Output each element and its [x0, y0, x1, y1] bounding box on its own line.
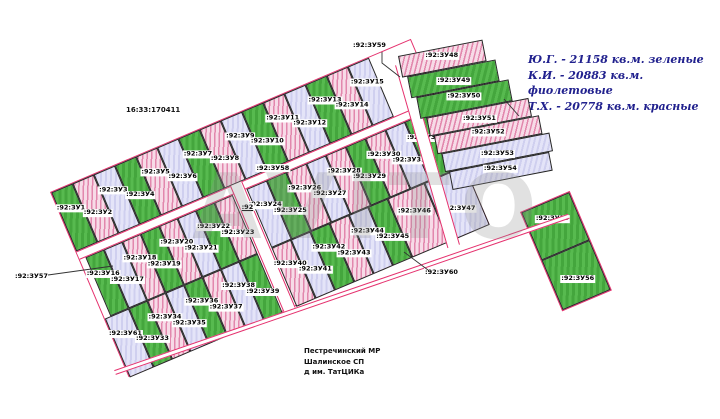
parcel-label-4: :92:ЗУ4: [125, 191, 155, 199]
road-57-label: :92:ЗУ57: [14, 272, 49, 280]
parcel-label-53: :92:ЗУ53: [480, 150, 515, 158]
parcel-label-8: :92:ЗУ8: [209, 155, 239, 163]
parcel-label-56: :92:ЗУ56: [560, 275, 595, 283]
parcel-label-25: :92:ЗУ25: [273, 207, 308, 215]
parcel-label-49: :92:ЗУ49: [436, 77, 471, 85]
location-line-1: Пестречинский МР: [304, 346, 380, 357]
parcel-label-23: :92:ЗУ23: [220, 229, 255, 237]
parcel-label-5: :92:ЗУ5: [140, 169, 170, 177]
location-text: Пестречинский МР Шалинское СП д им. ТатЦ…: [304, 346, 380, 378]
parcel-label-19: :92:ЗУ19: [147, 260, 182, 268]
parcel-label-50: :92:ЗУ50: [446, 92, 481, 100]
right-block: :92:ЗУ48:92:ЗУ49:92:ЗУ50:92:ЗУ51:92:ЗУ52…: [398, 30, 557, 195]
parcel-label-45: :92:ЗУ45: [375, 233, 410, 241]
parcel-label-54: :92:ЗУ54: [483, 165, 518, 173]
parcel-label-27: :92:ЗУ27: [313, 190, 348, 198]
se-block: :92:ЗУ55:92:ЗУ56: [520, 191, 612, 312]
parcel-label-35: :92:ЗУ35: [172, 319, 207, 327]
parcel-block-48-54: :92:ЗУ48:92:ЗУ49:92:ЗУ50:92:ЗУ51:92:ЗУ52…: [398, 30, 557, 195]
parcel-label-37: :92:ЗУ37: [209, 304, 244, 312]
parcel-label-41: :92:ЗУ41: [297, 266, 332, 274]
location-line-3: д им. ТатЦИКа: [304, 367, 380, 378]
parcel-label-33: :92:ЗУ33: [135, 335, 170, 343]
parcel-block-55-56: :92:ЗУ55:92:ЗУ56: [521, 192, 610, 310]
parcel-label-3: :92:ЗУ3: [98, 187, 128, 195]
road-59-label: :92:ЗУ59: [352, 41, 387, 49]
parcel-label-43: :92:ЗУ43: [336, 249, 371, 257]
legend-entry-violet: К.И. - 20883 кв.м. фиолетовые: [528, 68, 720, 99]
parcel-label-14: :92:ЗУ14: [334, 101, 369, 109]
legend-entry-green: Ю.Г. - 21158 кв.м. зеленые: [528, 52, 720, 68]
parcel-label-15: :92:ЗУ15: [349, 79, 384, 87]
cadastral-map: 16:33:170411 Ю.Г. - 21158 кв.м. зеленые …: [0, 0, 720, 419]
parcel-label-48: :92:ЗУ48: [424, 52, 459, 60]
parcel-label-46: :92:ЗУ46: [397, 207, 432, 215]
legend: Ю.Г. - 21158 кв.м. зеленые К.И. - 20883 …: [528, 52, 720, 114]
legend-entry-red: Т.Х. - 20778 кв.м. красные: [528, 99, 720, 115]
parcel-label-2: :92:ЗУ2: [82, 209, 112, 217]
road-60-label: :92:ЗУ60: [424, 268, 459, 276]
parcel-label-39: :92:ЗУ39: [245, 288, 280, 296]
location-line-2: Шалинское СП: [304, 357, 380, 368]
parcel-label-10: :92:ЗУ10: [249, 137, 284, 145]
road-58-label: :92:ЗУ58: [255, 164, 290, 172]
parent-parcel-label: :92: [241, 203, 255, 211]
parcel-label-17: :92:ЗУ17: [110, 276, 145, 284]
parcel-label-51: :92:ЗУ51: [462, 115, 497, 122]
parcel-label-7: :92:ЗУ7: [182, 151, 212, 159]
parcel-label-21: :92:ЗУ21: [184, 245, 219, 253]
parcel-label-6: :92:ЗУ6: [167, 173, 197, 181]
parcel-label-52: :92:ЗУ52: [470, 128, 505, 136]
quarter-label: 16:33:170411: [126, 106, 180, 114]
parcel-label-1: :92:ЗУ1: [55, 205, 85, 213]
parcel-label-12: :92:ЗУ12: [292, 119, 327, 127]
parcel-label-29: :92:ЗУ29: [352, 173, 387, 181]
